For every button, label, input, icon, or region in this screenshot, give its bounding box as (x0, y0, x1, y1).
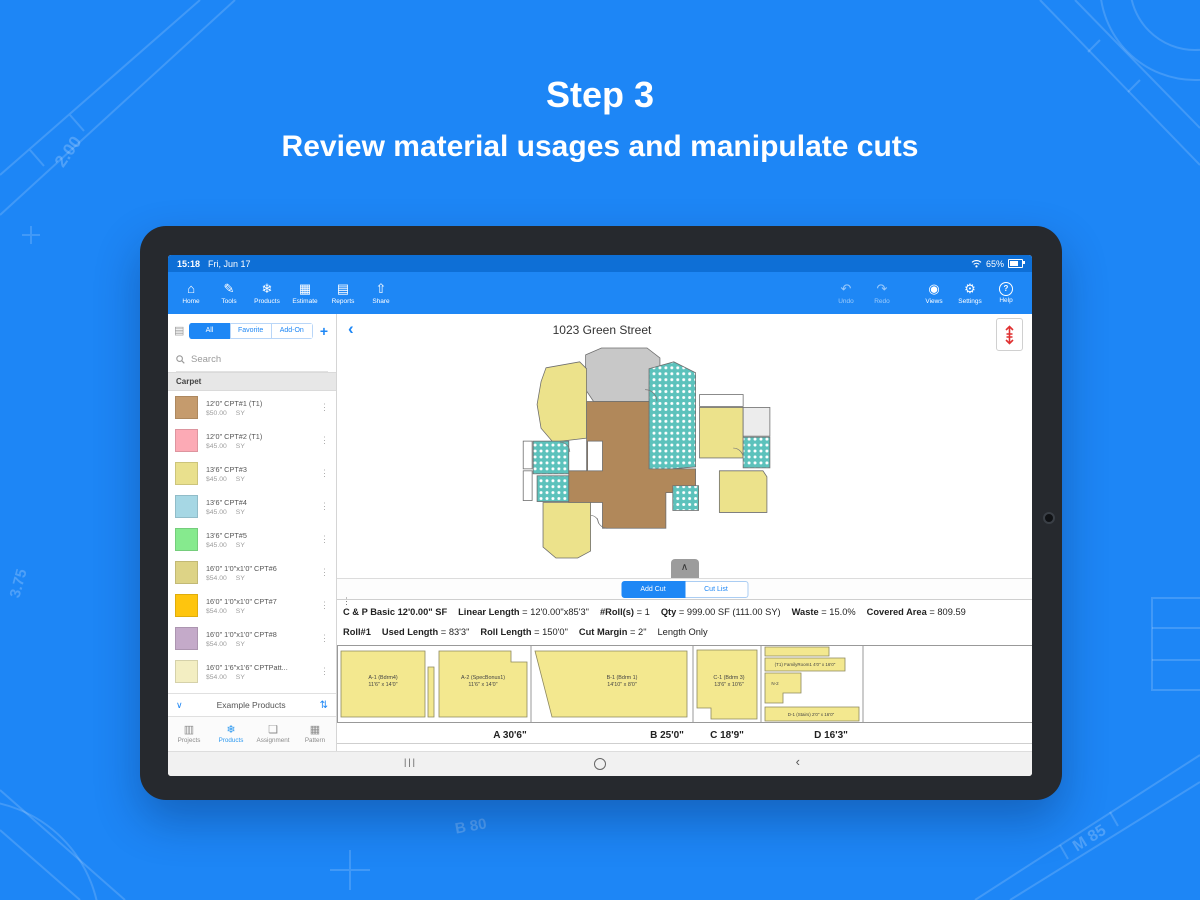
tablet-frame: 15:18 Fri, Jun 17 65% ⌂Home✎Tools❄Produc… (140, 226, 1062, 800)
product-price: $45.00SY (206, 443, 312, 450)
floor-plan-svg (507, 347, 797, 559)
toolbar-label: Views (925, 298, 942, 305)
product-swatch (175, 462, 198, 485)
assignment-icon: ❏ (268, 725, 278, 736)
search-placeholder: Search (191, 354, 221, 365)
product-swatch (175, 627, 198, 650)
product-unit: SY (236, 674, 245, 681)
summary-item: Covered Area = 809.59 (867, 607, 966, 617)
cut-piece-label: A-1 (Bdrm4)11'6" x 14'0" (368, 675, 398, 688)
product-row[interactable]: 13'6" CPT#3$45.00SY⋮ (168, 457, 336, 490)
example-products-row[interactable]: ∨ Example Products ⇅ (168, 693, 336, 716)
roll-section-label: D 16'3" (814, 730, 848, 741)
row-menu-icon[interactable]: ⋮ (320, 402, 329, 413)
product-name: 16'0" 1'0"x1'0" CPT#8 (206, 630, 312, 639)
app-toolbar: ⌂Home✎Tools❄Products▦Estimate▤Reports⇧Sh… (168, 272, 1032, 314)
status-battery-percent: 65% (986, 259, 1004, 269)
sidebar-tab-label: Projects (178, 737, 201, 744)
home-icon: ⌂ (187, 282, 195, 297)
product-row[interactable]: 12'0" CPT#2 (T1)$45.00SY⋮ (168, 424, 336, 457)
toolbar-label: Share (372, 298, 389, 305)
search-input[interactable]: Search (176, 347, 328, 372)
product-unit: SY (236, 410, 245, 417)
product-price: $45.00SY (206, 509, 312, 516)
summary-item: Length Only (658, 627, 708, 637)
row-menu-icon[interactable]: ⋮ (320, 501, 329, 512)
product-info: 13'6" CPT#5$45.00SY (206, 531, 312, 549)
summary-item: Roll#1 (343, 627, 371, 637)
toolbar-label: Settings (958, 298, 982, 305)
cut-sheet[interactable]: A-1 (Bdrm4)11'6" x 14'0"A-2 (SpecBonus1)… (337, 645, 1032, 745)
projects-icon: ▥ (184, 725, 194, 736)
sort-icon[interactable]: ⇅ (320, 700, 328, 711)
roll-section-label: B 25'0" (650, 730, 684, 741)
summary-item: Waste = 15.0% (792, 607, 856, 617)
summary-item: Qty = 999.00 SF (111.00 SY) (661, 607, 781, 617)
search-icon (176, 355, 185, 364)
toolbar-home[interactable]: ⌂Home (172, 282, 210, 305)
product-name: 16'0" 1'6"x1'6" CPTPatt... (206, 663, 312, 672)
product-unit: SY (236, 443, 245, 450)
toolbar-reports[interactable]: ▤Reports (324, 282, 362, 305)
product-name: 16'0" 1'0"x1'0" CPT#6 (206, 564, 312, 573)
chevron-down-icon: ∨ (176, 700, 183, 711)
row-menu-icon[interactable]: ⋮ (320, 534, 329, 545)
floor-plan-area[interactable] (337, 347, 1032, 559)
product-name: 12'0" CPT#2 (T1) (206, 432, 312, 441)
product-info: 13'6" CPT#4$45.00SY (206, 498, 312, 516)
toolbar-estimate[interactable]: ▦Estimate (286, 282, 324, 305)
decor-label-4: M 85 (1070, 822, 1110, 856)
status-time: 15:18 (177, 259, 200, 269)
toolbar-label: Tools (221, 298, 236, 305)
products-sidebar: ▤ AllFavoriteAdd-On + Search Carpet 12'0… (168, 314, 337, 752)
product-swatch (175, 396, 198, 419)
product-unit: SY (236, 476, 245, 483)
wifi-icon (971, 259, 982, 268)
product-filter-tabs: AllFavoriteAdd-On (189, 323, 312, 339)
pattern-icon: ▦ (310, 725, 320, 736)
product-price: $54.00SY (206, 674, 312, 681)
help-icon: ? (999, 282, 1013, 296)
add-product-button[interactable]: + (318, 323, 330, 339)
toolbar-label: Redo (874, 298, 890, 305)
products-icon: ❄ (262, 282, 273, 297)
toolbar-help[interactable]: ?Help (988, 282, 1024, 305)
cut-piece-label: D-1 (Stairs) 2'0" x 16'0" (788, 712, 835, 717)
recents-icon[interactable]: ||| (404, 757, 417, 767)
row-menu-icon[interactable]: ⋮ (320, 435, 329, 446)
toolbar-products[interactable]: ❄Products (248, 282, 286, 305)
filter-tab-all[interactable]: All (189, 323, 230, 339)
tablet-screen: 15:18 Fri, Jun 17 65% ⌂Home✎Tools❄Produc… (168, 255, 1032, 776)
toolbar-label: Help (999, 297, 1012, 304)
summary-line-2: Roll#1Used Length = 83'3"Roll Length = 1… (343, 622, 1032, 642)
product-unit: SY (236, 575, 245, 582)
product-list: 12'0" CPT#1 (T1)$50.00SY⋮12'0" CPT#2 (T1… (168, 391, 336, 693)
row-menu-icon[interactable]: ⋮ (320, 567, 329, 578)
sidebar-tab-pattern[interactable]: ▦Pattern (294, 717, 336, 752)
sidebar-tab-projects[interactable]: ▥Projects (168, 717, 210, 752)
product-info: 12'0" CPT#1 (T1)$50.00SY (206, 399, 312, 417)
cut-piece-label: (T1) FamilyRoom1 4'0" x 16'0" (775, 662, 836, 667)
sidebar-tab-assignment[interactable]: ❏Assignment (252, 717, 294, 752)
hero-step-title: Step 3 (0, 74, 1200, 116)
toolbar-label: Home (182, 298, 199, 305)
product-row[interactable]: 16'0" 1'0"x1'0" CPT#8$54.00SY⋮ (168, 622, 336, 655)
roll-section-label: A 30'6" (493, 730, 527, 741)
toolbar-share[interactable]: ⇧Share (362, 282, 400, 305)
tablet-camera (1043, 512, 1055, 524)
redo-icon: ↷ (877, 282, 888, 297)
toolbar-tools[interactable]: ✎Tools (210, 282, 248, 305)
back-icon[interactable]: ‹ (796, 754, 800, 769)
seam-tool-icon (1003, 324, 1016, 346)
undo-icon: ↶ (841, 282, 852, 297)
reports-icon: ▤ (337, 282, 349, 297)
product-price: $54.00SY (206, 575, 312, 582)
cut-button-strip: Add Cut Cut List (337, 578, 1032, 600)
views-icon: ◉ (928, 282, 939, 297)
product-row[interactable]: 13'6" CPT#5$45.00SY⋮ (168, 523, 336, 556)
status-bar: 15:18 Fri, Jun 17 65% (168, 255, 1032, 272)
cut-piece-label: B-1 (Bdrm 1)14'10" x 8'0" (607, 675, 638, 688)
toolbar-label: Reports (332, 298, 355, 305)
product-swatch (175, 660, 198, 683)
row-menu-icon[interactable]: ⋮ (320, 600, 329, 611)
hero-subtitle: Review material usages and manipulate cu… (0, 130, 1200, 164)
summary-item: Used Length = 83'3" (382, 627, 470, 637)
filter-tab-addon[interactable]: Add-On (271, 323, 313, 339)
row-menu-icon[interactable]: ⋮ (320, 468, 329, 479)
sidebar-bottom-tabs: ▥Projects❄Products❏Assignment▦Pattern (168, 716, 336, 752)
decor-label-2: 3.75 (7, 567, 31, 600)
product-unit: SY (236, 509, 245, 516)
tools-icon: ✎ (224, 282, 235, 297)
estimate-icon: ▦ (299, 282, 311, 297)
summary-item: #Roll(s) = 1 (600, 607, 650, 617)
product-info: 16'0" 1'6"x1'6" CPTPatt...$54.00SY (206, 663, 312, 681)
summary-item: Cut Margin = 2" (579, 627, 647, 637)
product-row[interactable]: 13'6" CPT#4$45.00SY⋮ (168, 490, 336, 523)
cut-piece-label: C-1 (Bdrm 3)13'6" x 10'6" (713, 675, 744, 688)
product-swatch (175, 429, 198, 452)
product-price: $54.00SY (206, 641, 312, 648)
sidebar-tab-label: Pattern (305, 737, 325, 744)
summary-line-1: C & P Basic 12'0.00" SFLinear Length = 1… (343, 602, 1032, 622)
sidebar-tab-products[interactable]: ❄Products (210, 717, 252, 752)
product-row[interactable]: 16'0" 1'0"x1'0" CPT#7$54.00SY⋮ (168, 589, 336, 622)
cut-piece[interactable] (765, 647, 829, 656)
toolbar-redo[interactable]: ↷Redo (864, 282, 900, 305)
cut-list-button[interactable]: Cut List (685, 581, 748, 598)
toolbar-settings[interactable]: ⚙Settings (952, 282, 988, 305)
product-name: 13'6" CPT#5 (206, 531, 312, 540)
product-price: $50.00SY (206, 410, 312, 417)
product-name: 13'6" CPT#3 (206, 465, 312, 474)
decor-label-3: B 80 (454, 815, 488, 837)
category-header[interactable]: Carpet (168, 372, 336, 391)
plan-canvas[interactable]: ‹ 1023 Green Street (337, 314, 1032, 752)
row-menu-icon[interactable]: ⋮ (320, 666, 329, 677)
product-row[interactable]: 16'0" 1'6"x1'6" CPTPatt...$54.00SY⋮ (168, 655, 336, 688)
product-price: $45.00SY (206, 542, 312, 549)
product-price: $45.00SY (206, 476, 312, 483)
cut-piece[interactable] (428, 667, 434, 717)
cut-piece-label: N-2 (771, 681, 779, 686)
roll-section-label: C 18'9" (710, 730, 744, 741)
toolbar-views[interactable]: ◉Views (916, 282, 952, 305)
product-info: 16'0" 1'0"x1'0" CPT#8$54.00SY (206, 630, 312, 648)
toolbar-label: Products (254, 298, 280, 305)
android-nav-bar: ||| ‹ (168, 751, 1032, 776)
back-button[interactable]: ‹ (348, 319, 354, 339)
product-unit: SY (236, 542, 245, 549)
product-name: 12'0" CPT#1 (T1) (206, 399, 312, 408)
product-name: 13'6" CPT#4 (206, 498, 312, 507)
toolbar-label: Undo (838, 298, 854, 305)
toolbar-label: Estimate (292, 298, 317, 305)
product-info: 12'0" CPT#2 (T1)$45.00SY (206, 432, 312, 450)
settings-icon: ⚙ (964, 282, 976, 297)
page-title: 1023 Green Street (553, 323, 652, 337)
home-circle-icon[interactable] (594, 758, 606, 770)
product-unit: SY (236, 641, 245, 648)
product-unit: SY (236, 608, 245, 615)
product-name: 16'0" 1'0"x1'0" CPT#7 (206, 597, 312, 606)
product-swatch (175, 594, 198, 617)
product-swatch (175, 495, 198, 518)
product-info: 16'0" 1'0"x1'0" CPT#7$54.00SY (206, 597, 312, 615)
summary-item: C & P Basic 12'0.00" SF (343, 607, 447, 617)
product-info: 16'0" 1'0"x1'0" CPT#6$54.00SY (206, 564, 312, 582)
share-icon: ⇧ (376, 282, 387, 297)
status-date: Fri, Jun 17 (208, 259, 251, 269)
product-price: $54.00SY (206, 608, 312, 615)
product-row[interactable]: 16'0" 1'0"x1'0" CPT#6$54.00SY⋮ (168, 556, 336, 589)
filter-tab-favorite[interactable]: Favorite (230, 323, 272, 339)
product-info: 13'6" CPT#3$45.00SY (206, 465, 312, 483)
row-menu-icon[interactable]: ⋮ (320, 633, 329, 644)
list-view-icon[interactable]: ▤ (174, 324, 184, 337)
material-summary: C & P Basic 12'0.00" SFLinear Length = 1… (337, 599, 1032, 648)
add-cut-button[interactable]: Add Cut (621, 581, 685, 598)
sidebar-tab-label: Products (219, 737, 244, 744)
summary-item: Linear Length = 12'0.00"x85'3" (458, 607, 589, 617)
panel-collapse-handle[interactable]: ∧ (671, 559, 699, 578)
product-row[interactable]: 12'0" CPT#1 (T1)$50.00SY⋮ (168, 391, 336, 424)
sidebar-tab-label: Assignment (257, 737, 290, 744)
example-products-label: Example Products (183, 700, 320, 710)
products-icon: ❄ (226, 725, 235, 736)
product-swatch (175, 528, 198, 551)
summary-item: Roll Length = 150'0" (480, 627, 567, 637)
toolbar-undo[interactable]: ↶Undo (828, 282, 864, 305)
battery-icon (1008, 259, 1023, 268)
product-swatch (175, 561, 198, 584)
